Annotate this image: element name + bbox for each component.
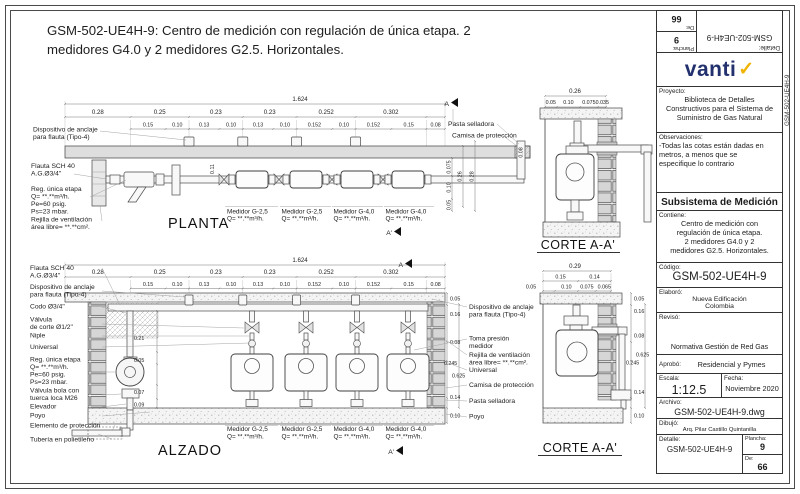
dim-label: 0.23 bbox=[210, 109, 222, 116]
dim-label: 0.10 bbox=[172, 282, 182, 288]
note-label: Universal bbox=[30, 344, 58, 351]
observaciones-label: Observaciones: bbox=[657, 133, 782, 141]
dim-label: 1.624 bbox=[292, 96, 308, 103]
dim-label: 0.035 bbox=[596, 100, 609, 106]
meter-section bbox=[556, 146, 594, 220]
section-arrow-icon bbox=[451, 98, 458, 107]
dim-label: 0.25 bbox=[154, 109, 166, 116]
poyo-slab bbox=[543, 222, 620, 237]
note-label: área libre= **.**cm². bbox=[469, 360, 528, 367]
outlet-riser-plan bbox=[517, 141, 525, 179]
dim-label: 0.10 bbox=[563, 100, 573, 106]
dim-label: 0.10 bbox=[339, 123, 349, 129]
note-label: para flauta (Tipo-4) bbox=[33, 134, 90, 141]
note-label: Poyo bbox=[469, 414, 485, 421]
dim-label: 0.075 bbox=[580, 285, 593, 291]
escala-fecha-cell: Escala: 1:12.5 Fecha: Noviembre 2020 bbox=[657, 374, 782, 398]
dim-label: 0.152 bbox=[308, 282, 321, 288]
meter-assemblies bbox=[231, 311, 429, 407]
dim-label: 0.05 bbox=[450, 297, 460, 303]
dim-label: 0.23 bbox=[210, 269, 222, 276]
top-band bbox=[65, 293, 445, 302]
dim-label: 0.245 bbox=[626, 361, 639, 367]
dim-label: 0.14 bbox=[589, 275, 599, 281]
meter-label: Medidor G-4,0 bbox=[386, 208, 427, 215]
dim-label: 0.05 bbox=[526, 285, 536, 291]
meter-label: Medidor G-4,0 bbox=[334, 208, 375, 215]
proyecto-text: Biblioteca de Detalles Constructivos par… bbox=[657, 95, 782, 122]
proyecto-cell: Proyecto: Biblioteca de Detalles Constru… bbox=[657, 87, 782, 133]
meter-flow-label: Q= **.**m³/h. bbox=[334, 216, 371, 223]
note-label: Dispositivo de anclaje bbox=[469, 304, 534, 311]
aprobo-value: Residencial y Pymes bbox=[681, 360, 782, 369]
contiene-label: Contiene: bbox=[657, 211, 782, 219]
dim-label: 0.08 bbox=[430, 282, 440, 288]
note-label: Camisa de protección bbox=[469, 382, 534, 389]
dim-label: 0.26 bbox=[569, 88, 581, 95]
dim-label: 0.15 bbox=[404, 282, 414, 288]
dim-label: 0.252 bbox=[318, 109, 334, 116]
note-label: Rejilla de ventilación bbox=[469, 352, 530, 359]
note-label: Reg. única etapa bbox=[30, 357, 81, 364]
dim-label: 0.075 bbox=[582, 100, 595, 106]
dim-label: 0.28 bbox=[470, 171, 476, 181]
section-marker: A bbox=[445, 101, 450, 108]
dim-label: 0.13 bbox=[253, 123, 263, 129]
dim-label: 0.10 bbox=[634, 414, 644, 420]
note-label: A.G.Ø3/4" bbox=[30, 273, 61, 280]
outlet-pipe bbox=[584, 145, 648, 152]
codigo-cell: Código: GSM-502-UE4H-9 bbox=[657, 263, 782, 288]
meter-label: Medidor G-2,5 bbox=[227, 208, 268, 215]
note-label: Dispositivo de anclaje bbox=[30, 284, 95, 291]
archivo-value: GSM-502-UE4H-9.dwg bbox=[657, 407, 782, 417]
brand-cell: vanti ✓ bbox=[657, 53, 782, 87]
tee-plan bbox=[172, 165, 180, 195]
meter-label: Medidor G-4,0 bbox=[386, 426, 427, 433]
dim-label: 0.152 bbox=[367, 123, 380, 129]
note-label: Rejilla de ventilación bbox=[31, 217, 92, 224]
brick-column bbox=[427, 302, 445, 408]
note-label: A.G.Ø3/4" bbox=[31, 171, 62, 178]
dibujo-value: Arq. Pilar Castillo Quintanilla bbox=[657, 427, 782, 433]
note-label: Flauta SCH 40 bbox=[30, 265, 74, 272]
note-label: de corte Ø1/2" bbox=[30, 324, 74, 331]
meter-flow-label: Q= **.**m³/h. bbox=[386, 216, 423, 223]
dim-label: 0.05 bbox=[447, 200, 453, 210]
note-label: Ps=23 mbar. bbox=[31, 209, 69, 216]
de-cell: De: 66 bbox=[743, 455, 782, 474]
detalle-cell-rotated: Detalle: GSM-502-UE4H-9 bbox=[697, 11, 782, 52]
dim-label: 0.08 bbox=[519, 147, 525, 157]
dim-label: 0.075 bbox=[447, 160, 453, 173]
meter-flow-label: Q= **.**m³/h. bbox=[282, 216, 319, 223]
dim-label: 0.302 bbox=[383, 269, 399, 276]
note-label: Camisa de protección bbox=[452, 133, 517, 140]
dim-label: 0.26 bbox=[458, 171, 464, 181]
section-marker: A' bbox=[388, 449, 394, 456]
note-label: Pasta selladora bbox=[469, 398, 515, 405]
contiene-cell: Contiene: Centro de medición con regulac… bbox=[657, 211, 782, 263]
archivo-cell: Archivo: GSM-502-UE4H-9.dwg bbox=[657, 398, 782, 419]
corner-rotated-block: Detalle: GSM-502-UE4H-9 Plancha: 9 De: 6… bbox=[657, 11, 782, 53]
codigo-value: GSM-502-UE4H-9 bbox=[657, 271, 782, 283]
dim-label: 0.08 bbox=[634, 334, 644, 340]
meter-flow-label: Q= **.**m³/h. bbox=[227, 433, 264, 440]
anchor-clips-plan bbox=[184, 137, 361, 146]
note-label: Flauta SCH 40 bbox=[31, 163, 75, 170]
detalle-label: Detalle: bbox=[697, 44, 782, 52]
dim-label: 0.07 bbox=[134, 390, 144, 396]
meter-flow-label: Q= **.**m³/h. bbox=[386, 433, 423, 440]
section-marker: A' bbox=[386, 230, 392, 237]
alzado-view: 1.624 0.28 0.25 0.23 0.23 0.252 0.302 0.… bbox=[30, 257, 534, 459]
escala-value: 1:12.5 bbox=[657, 383, 721, 397]
note-label: Válvula bola con bbox=[30, 388, 79, 395]
dim-label: 0.29 bbox=[569, 263, 581, 270]
note-label: Tubería en polietileno bbox=[30, 437, 94, 444]
escala-cell: Escala: 1:12.5 bbox=[657, 374, 722, 397]
note-label: Válvula bbox=[30, 317, 52, 324]
brick-column bbox=[88, 302, 106, 408]
poyo-slab bbox=[88, 408, 445, 424]
meter-label: Medidor G-2,5 bbox=[282, 426, 323, 433]
poyo-slab bbox=[543, 408, 623, 423]
brick-column bbox=[598, 119, 616, 222]
drop-pipe bbox=[644, 152, 651, 222]
meter-flow-label: Q= **.**m³/h. bbox=[282, 433, 319, 440]
section-arrow-icon bbox=[396, 446, 403, 455]
note-label: Pasta selladora bbox=[448, 121, 494, 128]
note-label: Dispositivo de anclaje bbox=[33, 127, 98, 134]
note-label: Universal bbox=[469, 367, 497, 374]
reviso-value: Normativa Gestión de Red Gas bbox=[657, 344, 782, 351]
dim-label: 0.13 bbox=[253, 282, 263, 288]
view-title-planta: PLANTA bbox=[168, 216, 229, 232]
dim-label: 0.302 bbox=[383, 109, 399, 116]
escala-label: Escala: bbox=[657, 374, 721, 382]
dim-label: 0.152 bbox=[367, 282, 380, 288]
contiene-text: Centro de medición con regulación de úni… bbox=[657, 219, 782, 255]
brick-column bbox=[598, 304, 616, 400]
codigo-label: Código: bbox=[657, 263, 782, 271]
dim-label: 0.10 bbox=[450, 414, 460, 420]
dim-label: 0.05 bbox=[634, 297, 644, 303]
note-label: Elemento de protección bbox=[30, 423, 101, 430]
dim-label: 0.21 bbox=[134, 336, 144, 342]
dim-label: 0.625 bbox=[636, 353, 649, 359]
view-title-corte-top: CORTE A-A' bbox=[541, 238, 616, 252]
dim-label: 0.252 bbox=[318, 269, 334, 276]
dim-label: 0.152 bbox=[308, 123, 321, 129]
meter-label: Medidor G-4,0 bbox=[334, 426, 375, 433]
note-label: Pe=60 psig. bbox=[31, 201, 67, 208]
detalle-code: GSM-502-UE4H-9 bbox=[657, 445, 742, 454]
dim-label: 0.10 bbox=[280, 282, 290, 288]
archivo-label: Archivo: bbox=[657, 398, 782, 406]
dim-label: 0.25 bbox=[154, 269, 166, 276]
dim-label: 0.065 bbox=[598, 285, 611, 291]
dim-label: 0.13 bbox=[199, 123, 209, 129]
wall-plan bbox=[65, 146, 530, 158]
detalle-cell: Detalle: GSM-502-UE4H-9 Plancha: 9 De: 6… bbox=[657, 435, 782, 473]
dim-label: 0.05 bbox=[134, 358, 144, 364]
meter-section bbox=[556, 305, 631, 409]
view-title-alzado: ALZADO bbox=[158, 443, 222, 459]
dim-label: 0.10 bbox=[447, 182, 453, 192]
elaboro-label: Elaboró: bbox=[657, 288, 782, 296]
meter-label: Medidor G-2,5 bbox=[227, 426, 268, 433]
top-slab bbox=[540, 108, 622, 119]
fecha-value: Noviembre 2020 bbox=[722, 384, 782, 393]
note-label: Niple bbox=[30, 333, 46, 340]
dim-label: 0.23 bbox=[264, 109, 276, 116]
dibujo-cell: Dibujó: Arq. Pilar Castillo Quintanilla bbox=[657, 419, 782, 435]
note-label: Ps=23 mbar. bbox=[30, 379, 68, 386]
note-label: Q= **.**m³/h. bbox=[31, 194, 70, 201]
meter-flow-label: Q= **.**m³/h. bbox=[334, 433, 371, 440]
dim-label: 0.10 bbox=[339, 282, 349, 288]
drawing-sheet: GSM-502-UE4H-9: Centro de medición con r… bbox=[0, 0, 800, 494]
dim-label: 0.15 bbox=[143, 282, 153, 288]
note-label: Pe=60 psig. bbox=[30, 372, 66, 379]
dim-label: 0.16 bbox=[450, 312, 460, 318]
dim-label: 0.10 bbox=[226, 123, 236, 129]
detalle-label: Detalle: bbox=[657, 435, 742, 443]
dibujo-label: Dibujó: bbox=[657, 419, 782, 427]
flauta-pipe bbox=[108, 304, 428, 311]
dim-label: 0.10 bbox=[226, 282, 236, 288]
dim-label: 0.16 bbox=[634, 309, 644, 315]
vent-grille-plan bbox=[92, 160, 106, 206]
dim-label: 0.13 bbox=[199, 282, 209, 288]
regulator-plan bbox=[110, 172, 164, 202]
elaboro-cell: Elaboró: Nueva Edificación Colombia bbox=[657, 288, 782, 313]
title-block: Detalle: GSM-502-UE4H-9 Plancha: 9 De: 6… bbox=[656, 10, 783, 474]
detalle-code: GSM-502-UE4H-9 bbox=[697, 33, 782, 42]
dim-label: 0.08 bbox=[430, 123, 440, 129]
aprobo-label: Aprobó: bbox=[657, 360, 681, 368]
note-label: Toma presión bbox=[469, 336, 509, 343]
fecha-label: Fecha: bbox=[722, 374, 782, 382]
corte-bottom-view: 0.29 0.15 0.14 0.05 0.10 0.075 0.065 bbox=[526, 263, 649, 456]
note-label: Poyo bbox=[30, 413, 46, 420]
dim-label: 0.11 bbox=[210, 164, 216, 174]
dim-label: 0.15 bbox=[404, 123, 414, 129]
observaciones-cell: Observaciones: -Todas las cotas están da… bbox=[657, 133, 782, 193]
section-arrow-icon bbox=[394, 227, 401, 236]
plancha-cell-rotated: Plancha: 9 bbox=[657, 31, 696, 52]
top-slab bbox=[540, 293, 622, 304]
dim-label: 0.28 bbox=[92, 109, 104, 116]
vanti-check-icon: ✓ bbox=[738, 58, 754, 81]
note-label: Reg. única etapa bbox=[31, 186, 82, 193]
note-label: Q= **.**m³/h. bbox=[30, 364, 69, 371]
dim-label: 0.14 bbox=[634, 390, 644, 396]
dim-label: 0.28 bbox=[92, 269, 104, 276]
dim-label: 1.624 bbox=[292, 257, 308, 264]
note-label: para flauta (Tipo-4) bbox=[469, 312, 526, 319]
proyecto-label: Proyecto: bbox=[657, 87, 782, 95]
dim-label: 0.625 bbox=[452, 374, 465, 380]
section-arrow-icon bbox=[405, 259, 412, 268]
elaboro-value: Nueva Edificación Colombia bbox=[657, 296, 782, 310]
planta-view: 1.624 0.28 0.25 0.23 0.23 0.252 0.302 0.… bbox=[31, 96, 530, 237]
note-label: tuerca loca M26 bbox=[30, 395, 78, 402]
dim-label: 0.23 bbox=[264, 269, 276, 276]
note-label: Elevador bbox=[30, 404, 57, 411]
vanti-logo: vanti bbox=[685, 58, 737, 82]
dim-label: 0.15 bbox=[555, 275, 565, 281]
de-cell-rotated: De: 66 bbox=[657, 11, 696, 31]
reviso-label: Revisó: bbox=[657, 313, 782, 321]
fecha-cell: Fecha: Noviembre 2020 bbox=[722, 374, 782, 397]
reviso-cell: Revisó: Normativa Gestión de Red Gas bbox=[657, 313, 782, 355]
dim-label: 0.10 bbox=[280, 123, 290, 129]
dim-label: 0.15 bbox=[143, 123, 153, 129]
aprobo-cell: Aprobó: Residencial y Pymes bbox=[657, 355, 782, 374]
dim-label: 0.09 bbox=[134, 403, 144, 409]
plancha-cell: Plancha: 9 bbox=[743, 435, 782, 455]
note-label: área libre= **.**cm². bbox=[31, 224, 90, 231]
dim-label: 0.10 bbox=[561, 285, 571, 291]
section-marker: A bbox=[399, 262, 404, 269]
meter-label: Medidor G-2,5 bbox=[282, 208, 323, 215]
dim-label: 0.05 bbox=[546, 100, 556, 106]
dim-label: 0.10 bbox=[172, 123, 182, 129]
subsistema-header: Subsistema de Medición bbox=[657, 193, 782, 211]
meter-flow-label: Q= **.**m³/h. bbox=[227, 216, 264, 223]
note-label: para flauta (Tipo-4) bbox=[30, 292, 87, 299]
observaciones-text: -Todas las cotas están dadas en metros, … bbox=[657, 141, 782, 168]
note-label: medidor bbox=[469, 343, 494, 350]
note-label: Codo Ø3/4" bbox=[30, 304, 65, 311]
corte-top-view: 0.26 0.05 0.10 0.075 0.035 CORTE A bbox=[537, 88, 652, 253]
view-title-corte-bottom: CORTE A-A' bbox=[543, 441, 618, 455]
